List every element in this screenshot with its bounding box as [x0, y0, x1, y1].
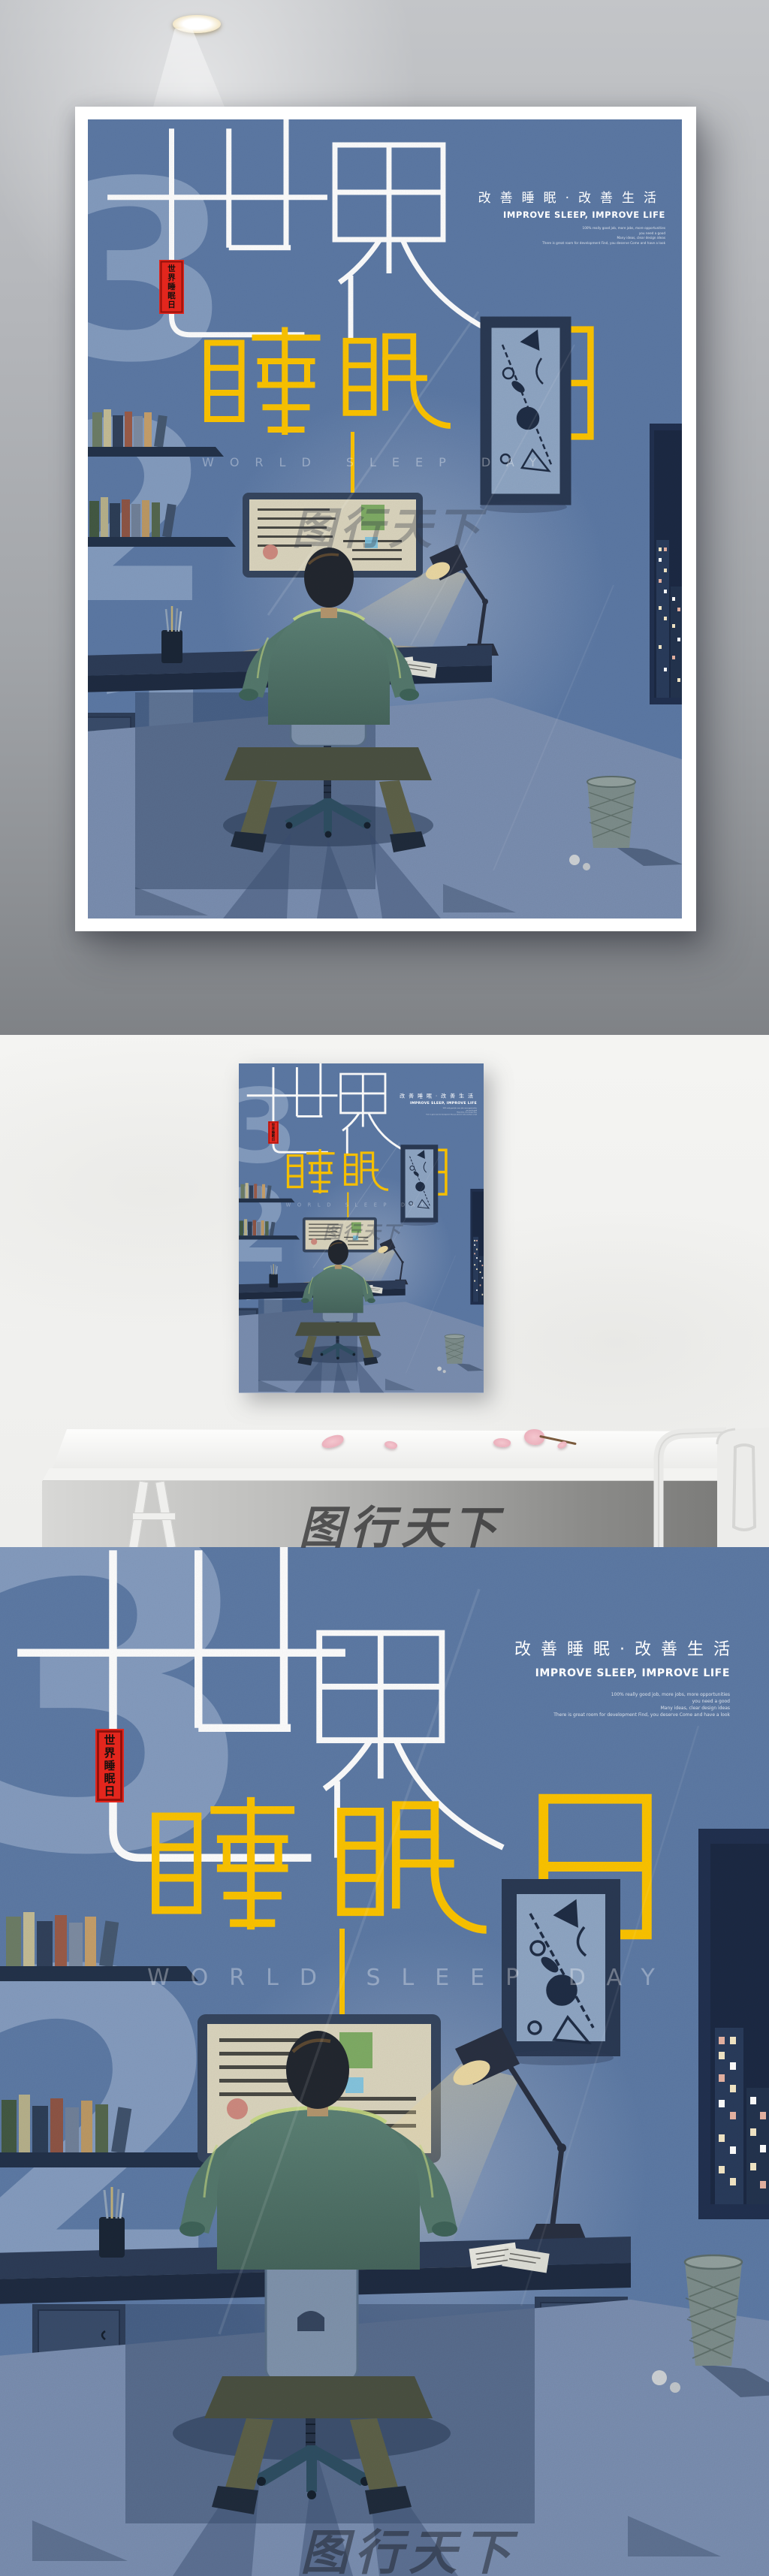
- mockup-table-scene: 3 2 1: [0, 1035, 769, 1547]
- sleep-day-poster: 3 2 1: [88, 119, 682, 918]
- body-copy: 100% really good job, more jobs, more op…: [542, 226, 665, 246]
- world-sleep-day-watermark: WORLD SLEEP DAY: [147, 1965, 676, 1991]
- red-seal-tag: 世界睡眠日: [159, 260, 184, 314]
- sleep-day-poster: 3 2 1: [239, 1063, 484, 1393]
- slogan-english: IMPROVE SLEEP, IMPROVE LIFE: [535, 1667, 730, 1679]
- slogan-chinese: 改善睡眠·改善生活: [400, 1091, 477, 1099]
- slogan-english: IMPROVE SLEEP, IMPROVE LIFE: [503, 210, 665, 220]
- body-copy: 100% really good job, more jobs, more op…: [426, 1108, 477, 1116]
- slogan-chinese: 改善睡眠·改善生活: [514, 1636, 740, 1660]
- world-sleep-day-watermark: WORLD SLEEP DAY: [202, 455, 552, 469]
- red-seal-tag: 世界睡眠日: [268, 1121, 279, 1144]
- white-chair: [651, 1414, 769, 1547]
- body-copy: 100% really good job, more jobs, more op…: [553, 1691, 730, 1718]
- slogan-english: IMPROVE SLEEP, IMPROVE LIFE: [410, 1100, 477, 1105]
- red-seal-tag: 世界睡眠日: [95, 1729, 124, 1802]
- world-sleep-day-watermark: WORLD SLEEP DAY: [286, 1202, 430, 1208]
- poster-closeup: 3 2 1: [0, 1547, 769, 2576]
- site-watermark: 图行天下: [300, 2514, 517, 2576]
- site-watermark: 图行天下: [323, 1217, 403, 1244]
- site-watermark: 图行天下: [299, 1492, 503, 1557]
- trestle-crossbar: [132, 1513, 176, 1520]
- framed-poster: 3 2 1: [75, 107, 696, 931]
- site-watermark: 图行天下: [292, 493, 484, 557]
- slogan-chinese: 改善睡眠·改善生活: [478, 187, 665, 206]
- gallery-wall-scene: 3 2 1: [0, 0, 769, 1035]
- poster-on-wall: 3 2 1: [239, 1063, 484, 1393]
